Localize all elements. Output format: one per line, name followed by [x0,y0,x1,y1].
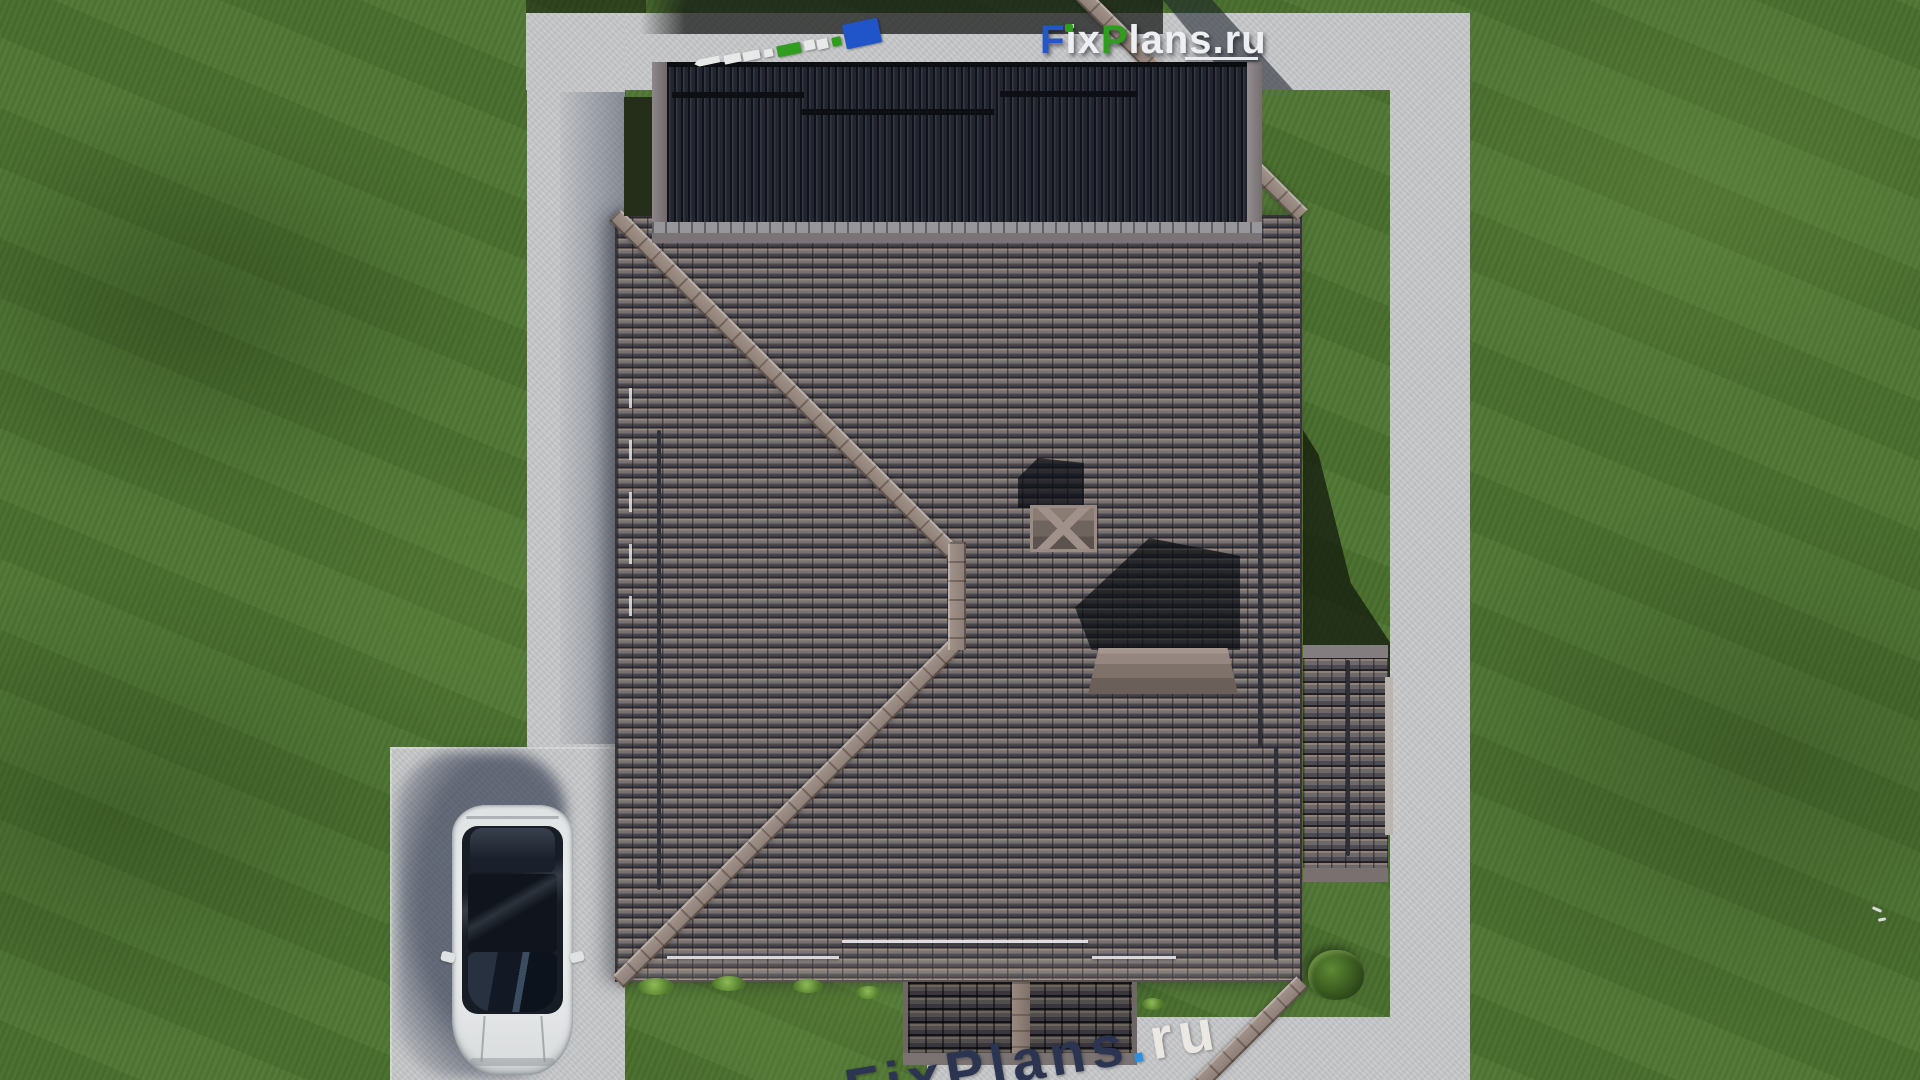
grass-shadow-line [526,0,646,13]
logo-underline [1185,57,1258,60]
dark-roof-trim-left [652,62,667,243]
dark-roof-step [672,92,804,98]
watermark-box-icon [816,38,829,50]
snow-guard-dashes-left [629,388,632,648]
dark-roof-step [1000,91,1138,97]
roof-eave-highlight [617,942,1300,982]
watermark-box-icon [763,48,773,58]
grass-tuft [638,978,674,995]
grass-tuft [793,979,823,993]
chimney-small-cap [1030,505,1097,552]
roof-gutter-left [657,430,661,890]
dark-roof-step [802,109,994,115]
car-windshield [468,952,557,1012]
shadowed-grass-sliver [624,97,652,216]
car-front-grille-line [470,1058,555,1066]
watermark-box-icon [742,49,760,61]
watermark-box-icon [723,52,741,64]
watermark-box-icon [803,39,816,51]
bush [1308,950,1364,1000]
grass-tuft [712,976,746,991]
roof-gutter-right-upper [1258,262,1262,748]
wing-roof-gutter [1346,660,1350,856]
chimney-long-cap [1088,648,1238,694]
small-white-mark [1878,917,1886,922]
grass-tuft [856,986,882,999]
car-roof-glass-panel [468,874,557,952]
aerial-render-scene: FixPlans.ru FixPlans.ru [0,0,1920,1080]
watermark-mini-icon [694,14,894,76]
wing-roof-trim-top [1303,645,1388,658]
path-right-strip [1390,13,1470,1080]
watermark-box-icon [831,36,842,47]
dark-roof-tiles [667,67,1247,222]
snow-guard-bar [842,940,1088,943]
dark-roof-fascia [652,233,1262,243]
small-white-mark [1872,906,1882,913]
wing-edge-strip [1385,677,1393,835]
snow-guard-bar [1092,956,1176,959]
roof-gutter-right-lower [1274,748,1278,960]
dark-roof-trim-right [1247,62,1262,243]
watermark-box-icon [694,55,721,67]
snow-guard-bar [667,956,839,959]
watermark-box-icon [776,42,802,58]
central-ridge [948,542,966,650]
watermark-box-icon [842,18,882,50]
dark-roof-cap-row [652,222,1262,233]
wing-roof-trim-bottom [1303,868,1388,882]
wing-shadow-on-grass [1303,430,1390,677]
car-rear-window [470,828,555,872]
car-spoiler-line [466,816,559,819]
